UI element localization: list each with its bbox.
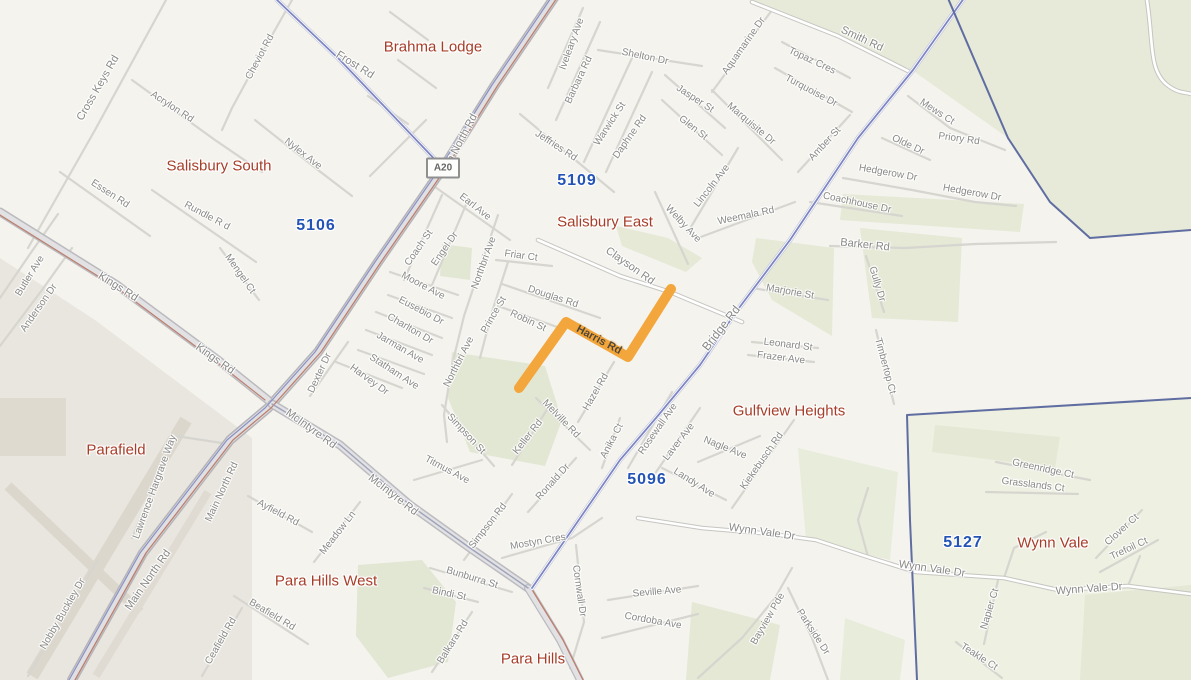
street-label-meadow-ln: Meadow Ln (318, 509, 358, 557)
postcode-label-5096: 5096 (627, 471, 667, 489)
street-label-hedgerow-dr: Hedgerow Dr (942, 182, 1002, 203)
street-label-charlton-dr: Charlton Dr (385, 311, 435, 346)
street-label-cordoba-ave: Cordoba Ave (624, 611, 683, 632)
street-label-bayview-pde: Bayview Pde (749, 591, 787, 647)
street-label-leonard-st: Leonard St (763, 337, 813, 354)
street-label-clover-ct: Clover Ct (1103, 512, 1141, 548)
street-label-northbri-ave: Northbri Ave (469, 235, 498, 290)
street-label-simpson-st: Simpson St (445, 412, 488, 457)
street-label-coach-st: Coach St (403, 228, 436, 268)
street-label-nobby-buckley-dr: Nobby Buckley Dr (38, 577, 88, 652)
street-label-jasper-st: Jasper St (674, 83, 715, 115)
street-label-ronald-dr: Ronald Dr (534, 462, 572, 503)
street-label-rundle-r-d: Rundle R d (182, 199, 231, 232)
street-label-grasslands-ct: Grasslands Ct (1001, 476, 1065, 495)
suburb-label-salisbury-south: Salisbury South (166, 158, 271, 175)
street-label-priory-rd: Priory Rd (938, 131, 981, 148)
street-label-timbertop-ct: Timbertop Ct (872, 337, 897, 395)
street-label-welby-ave: Welby Ave (663, 203, 703, 245)
street-label-daphne-rd: Daphne Rd (611, 113, 649, 161)
street-label-bunburra-st: Bunburra St (445, 565, 499, 591)
street-label-mews-ct: Mews Ct (918, 97, 957, 127)
street-label-prince-st: Prince St (479, 295, 509, 336)
street-label-moore-ave: Moore Ave (399, 270, 446, 302)
suburb-label-wynn-vale: Wynn Vale (1017, 535, 1088, 552)
street-label-smith-rd: Smith Rd (839, 24, 885, 54)
street-label-melville-rd: Melville Rd (540, 398, 582, 441)
street-label-main-north-rd: Main North Rd (123, 548, 174, 613)
street-label-cornwall-dr: Cornwall Dr (570, 564, 588, 617)
street-label-northbri-ave: Northbri Ave (442, 335, 477, 389)
street-label-nagle-ave: Nagle Ave (702, 434, 748, 461)
street-label-clayson-rd: Clayson Rd (603, 245, 656, 287)
street-label-coachhouse-dr: Coachhouse Dr (822, 190, 892, 215)
street-label-parkside-dr: Parkside Dr (794, 607, 832, 657)
street-label-laver-ave: Laver Ave (661, 421, 697, 463)
street-label-glen-st: Glen St (676, 113, 709, 142)
street-label-frazer-ave: Frazer Ave (756, 350, 805, 367)
street-label-napier-ct: Napier Ct (979, 587, 1002, 631)
street-label-anderson-dr: Anderson Dr (18, 282, 59, 334)
street-label-marquisite-dr: Marquisite Dr (725, 101, 778, 148)
street-label-wynn-vale-dr: Wynn Vale Dr (728, 521, 796, 542)
street-label-butler-ave: Butler Ave (13, 254, 46, 298)
street-label-main-north-rd: Main North Rd (203, 460, 240, 523)
suburb-label-para-hills-west: Para Hills West (275, 573, 377, 590)
suburb-label-para-hills: Para Hills (501, 651, 565, 668)
street-label-jeffries-rd: Jeffries Rd (533, 128, 579, 163)
suburb-label-parafield: Parafield (86, 442, 145, 459)
street-label-bridge-rd: Bridge Rd (699, 303, 743, 354)
street-label-olde-dr: Olde Dr (890, 133, 926, 158)
street-label-jarman-ave: Jarman Ave (374, 330, 425, 366)
street-label-trefoil-ct: Trefoil Ct (1108, 536, 1149, 563)
street-label-kings-rd: Kings Rd (193, 341, 236, 376)
street-label-rosewall-ave: Rosewall Ave (636, 401, 679, 456)
street-label-simpson-rd: Simpson Rd (467, 501, 509, 551)
street-label-greenridge-ct: Greenridge Ct (1011, 457, 1075, 481)
map-canvas[interactable]: Cross Keys RdAcrylon RdCheviot RdFrost R… (0, 0, 1191, 680)
street-label-cross-keys-rd: Cross Keys Rd (74, 53, 121, 123)
street-label-mcintyre-rd: McIntyre Rd (283, 407, 338, 452)
map-labels-layer: Cross Keys RdAcrylon RdCheviot RdFrost R… (0, 0, 1191, 680)
street-label-engel-dr: Engel Dr (429, 230, 460, 268)
street-label-frost-rd: Frost Rd (334, 49, 376, 82)
route-shield-a20: A20 (426, 158, 460, 179)
street-label-barker-rd: Barker Rd (840, 236, 891, 253)
postcode-label-5127: 5127 (943, 534, 983, 552)
street-label-shelton-dr: Shelton Dr (621, 47, 670, 68)
street-label-marjorie-st: Marjorie St (765, 282, 815, 301)
street-label-keller-rd: Keller Rd (511, 417, 545, 456)
street-label-robin-st: Robin St (508, 308, 547, 334)
street-label-beafield-rd: Beafield Rd (247, 597, 297, 633)
street-label-iveleary-ave: Iveleary Ave (558, 17, 587, 72)
street-label-acrylon-rd: Acrylon Rd (148, 89, 195, 125)
street-label-landy-ave: Landy Ave (671, 466, 716, 500)
street-label-topaz-cres: Topaz Cres (787, 45, 837, 76)
street-label-kiekebusch-rd: Kiekebusch Rd (738, 430, 786, 491)
street-label-warwick-st: Warwick St (592, 100, 628, 148)
street-label-aquamarine-dr: Aquamarine Dr (720, 15, 768, 76)
street-label-cheviot-rd: Cheviot Rd (244, 33, 277, 82)
street-label-weemala-rd: Weemala Rd (717, 205, 776, 228)
postcode-label-5109: 5109 (557, 172, 597, 190)
street-label-earl-ave: Earl Ave (457, 191, 493, 222)
street-label-harris-rd: Harris Rd (574, 323, 623, 357)
street-label-lawrence-hargrave-way: Lawrence Hargrave Way (131, 434, 179, 541)
street-label-nylex-ave: Nylex Ave (282, 136, 324, 172)
street-label-dexter-dr: Dexter Dr (306, 351, 334, 394)
street-label-hazel-rd: Hazel Rd (581, 371, 611, 412)
street-label-mcintyre-rd: McIntyre Rd (366, 472, 420, 518)
street-label-bindi-st: Bindi St (431, 585, 467, 603)
street-label-ayfield-rd: Ayfield Rd (255, 497, 300, 528)
suburb-label-brahma-lodge: Brahma Lodge (384, 39, 482, 56)
street-label-turquoise-dr: Turquoise Dr (783, 73, 839, 110)
street-label-essen-rd: Essen Rd (89, 178, 131, 211)
street-label-anika-ct: Anika Ct (598, 422, 625, 461)
street-label-statham-ave: Statham Ave (367, 352, 420, 392)
street-label-ceafield-rd: Ceafield Rd (203, 616, 239, 667)
street-label-wynn-vale-dr: Wynn Vale Dr (1055, 581, 1123, 598)
street-label-wynn-vale-dr: Wynn Vale Dr (898, 558, 966, 579)
street-label-balkara-rd: Balkara Rd (435, 618, 471, 666)
street-label-mostyn-cres: Mostyn Cres (509, 532, 566, 553)
street-label-barbara-rd: Barbara Rd (563, 55, 595, 106)
street-label-douglas-rd: Douglas Rd (526, 284, 579, 311)
street-label-mengel-ct: Mengel Ct (222, 252, 257, 296)
street-label-friar-ct: Friar Ct (504, 248, 539, 264)
street-label-titmus-ave: Titmus Ave (423, 454, 471, 487)
suburb-label-salisbury-east: Salisbury East (557, 214, 653, 231)
street-label-lincoln-ave: Lincoln Ave (692, 163, 732, 210)
postcode-label-5106: 5106 (296, 217, 336, 235)
street-label-gully-dr: Gully Dr (866, 265, 887, 303)
street-label-harvey-dr: Harvey Dr (348, 362, 391, 397)
street-label-seville-ave: Seville Ave (632, 584, 682, 599)
street-label-eusebio-dr: Eusebio Dr (397, 295, 446, 328)
suburb-label-gulfview-heights: Gulfview Heights (733, 403, 846, 420)
street-label-amber-st: Amber St (807, 125, 843, 163)
street-label-kings-rd: Kings Rd (96, 270, 140, 304)
street-label-hedgerow-dr: Hedgerow Dr (858, 162, 918, 183)
street-label-teakle-ct: Teakle Ct (959, 641, 1000, 673)
